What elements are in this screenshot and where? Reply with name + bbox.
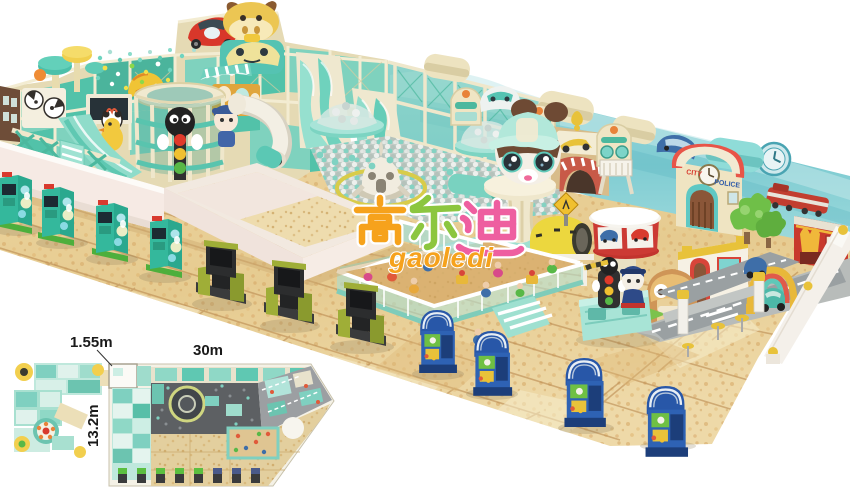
svg-text:1.55m: 1.55m	[70, 334, 113, 351]
svg-text:13.2m: 13.2m	[85, 404, 102, 447]
svg-text:30m: 30m	[193, 342, 223, 359]
svg-text:gaoledi: gaoledi	[388, 242, 494, 273]
